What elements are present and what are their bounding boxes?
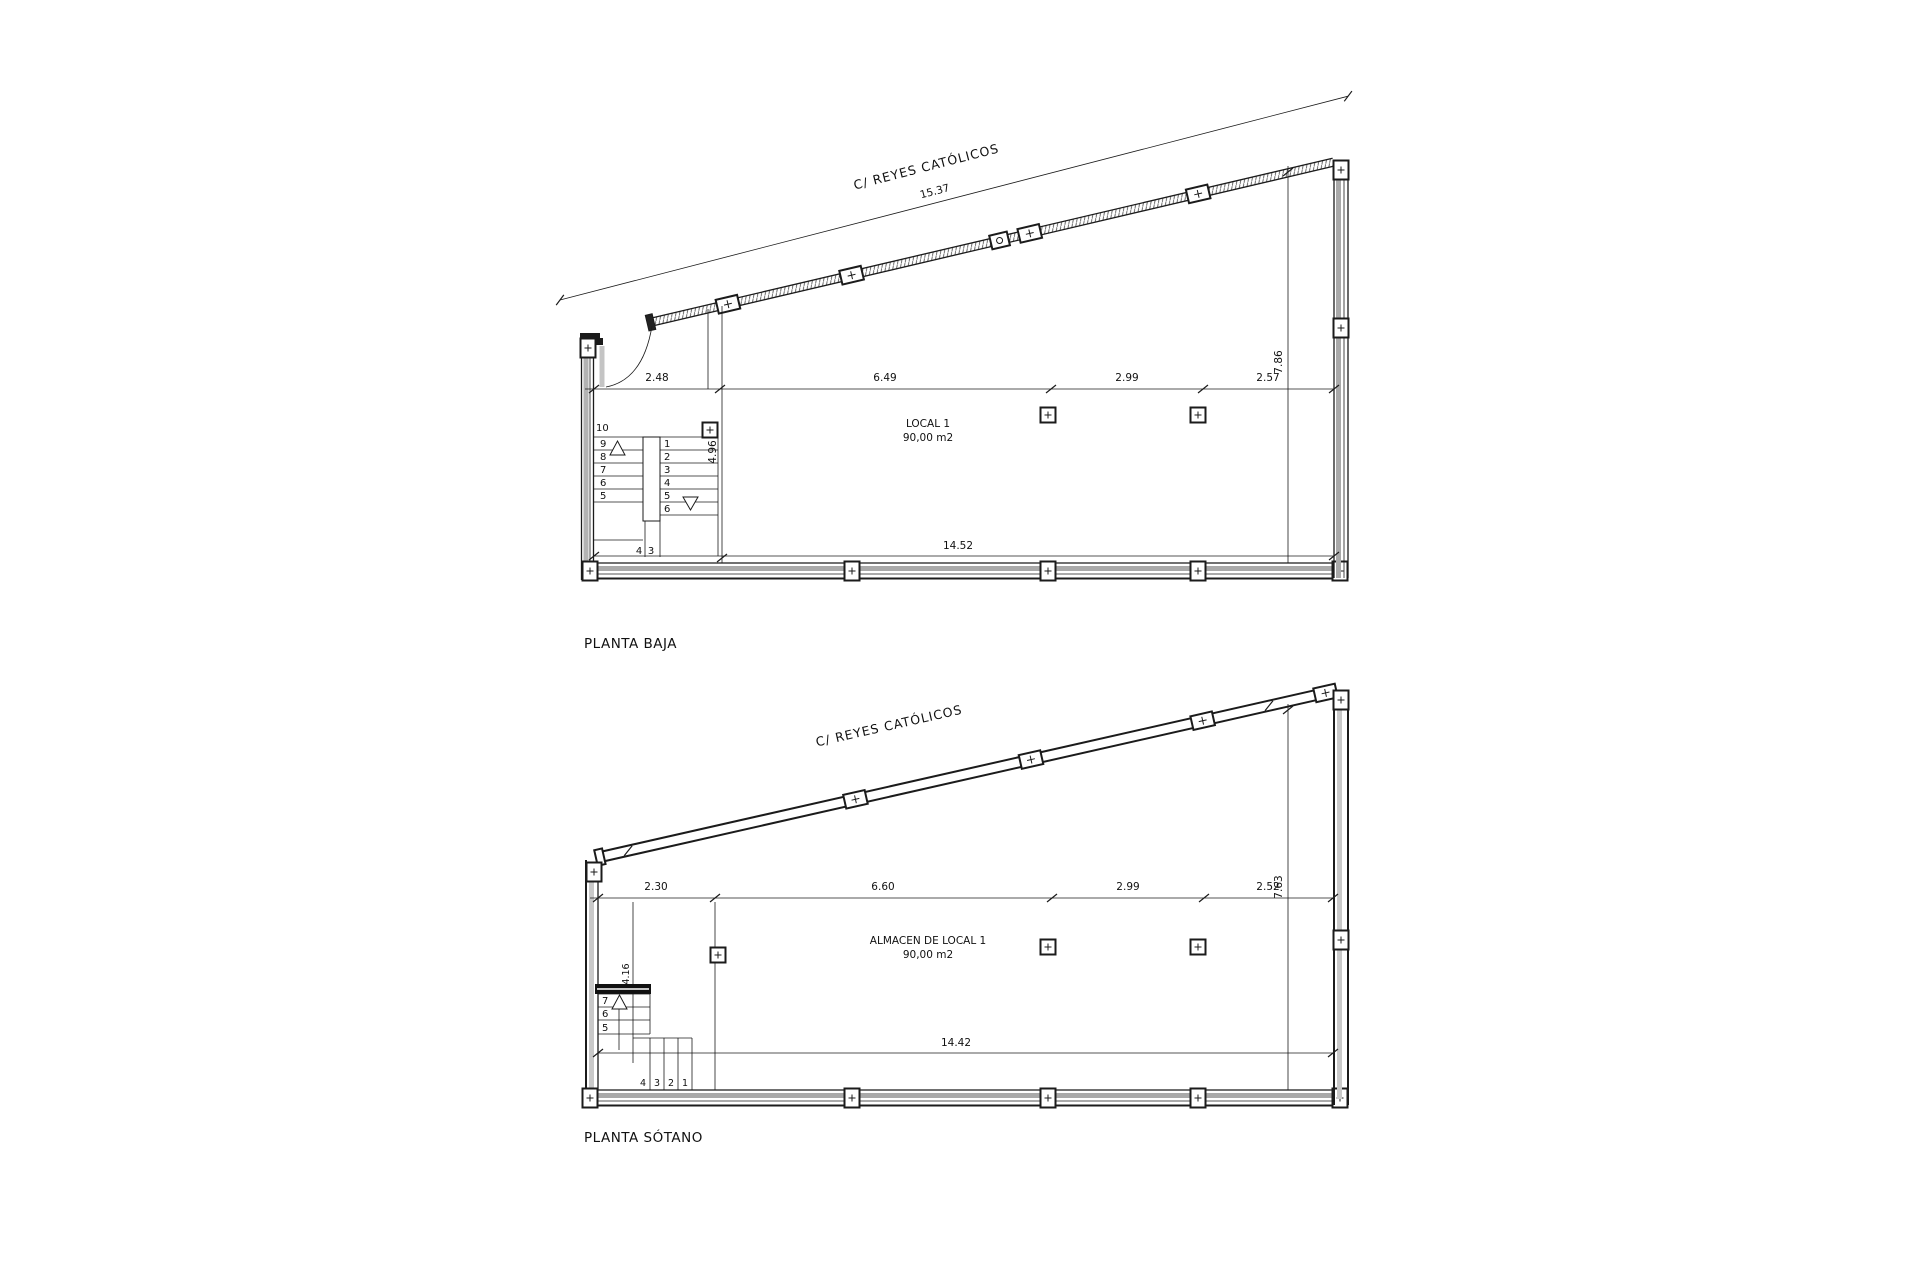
wall-pillar xyxy=(1334,319,1349,338)
architectural-sheet: C/ REYES CATÓLICOS 15.37 xyxy=(0,0,1920,1280)
staircase: 10 9 8 7 6 5 1 2 3 4 5 6 4 3 xyxy=(594,423,718,557)
facade-pillar xyxy=(1186,185,1211,204)
stair-rail xyxy=(643,437,660,521)
facade-pillar xyxy=(843,790,868,809)
room-area: 90,00 m2 xyxy=(903,432,953,444)
stair-step-number: 4 xyxy=(636,546,642,557)
facade-pillar xyxy=(1190,711,1215,730)
bottom-dimension-line: 14.42 xyxy=(593,1037,1338,1057)
bottom-wall xyxy=(582,1089,1348,1108)
stair-step-number: 3 xyxy=(654,1078,660,1089)
column-pillar xyxy=(711,948,726,963)
wall-pillar xyxy=(1334,931,1349,950)
stair-step-number: 5 xyxy=(602,1023,608,1034)
column-pillar xyxy=(1041,940,1056,955)
stair-step-number: 1 xyxy=(682,1078,688,1089)
stair-up-arrow xyxy=(612,995,627,1009)
dim-stair-length: 4.16 xyxy=(621,963,632,984)
column-pillar xyxy=(703,423,718,438)
stair-step-number: 7 xyxy=(600,465,606,476)
dimension-tick xyxy=(554,295,566,305)
depth-dimension-right: 7.86 xyxy=(1273,166,1293,563)
corner-pillar xyxy=(1334,691,1349,710)
dimension-tick xyxy=(1342,91,1354,101)
facade-wall xyxy=(645,154,1335,331)
dim-interior-depth: 4.96 xyxy=(707,440,719,464)
column-pillar xyxy=(1041,408,1056,423)
dim-segment-1: 2.30 xyxy=(644,881,667,893)
dim-bottom-total: 14.42 xyxy=(941,1037,971,1049)
stair-step-number: 5 xyxy=(664,491,670,502)
street-name-label: C/ REYES CATÓLICOS xyxy=(852,141,1001,193)
facade-pillar xyxy=(989,232,1010,250)
dim-segment-2: 6.60 xyxy=(871,881,894,893)
right-wall xyxy=(1334,161,1349,579)
bottom-dimension-line: 14.52 xyxy=(589,540,1339,560)
dim-segment-1: 2.48 xyxy=(645,372,668,384)
facade-pillar xyxy=(1017,224,1042,243)
room-label: ALMACEN DE LOCAL 1 90,00 m2 xyxy=(870,935,986,961)
corner-pillar xyxy=(1334,161,1349,180)
facade-end-cap xyxy=(645,314,655,331)
bottom-wall xyxy=(582,562,1348,581)
room-area: 90,00 m2 xyxy=(903,949,953,961)
stair-step-number: 2 xyxy=(668,1078,674,1089)
depth-dimension-right: 7.63 xyxy=(1273,704,1293,1090)
dim-segment-3: 2.99 xyxy=(1115,372,1138,384)
stair-step-number: 1 xyxy=(664,439,670,450)
corner-pillar xyxy=(581,339,596,358)
stair-step-number: 4 xyxy=(664,478,670,489)
column-pillar xyxy=(1191,940,1206,955)
stair-step-number: 6 xyxy=(664,504,670,515)
stair-step-number: 6 xyxy=(602,1009,608,1020)
staircase: 4.16 7 6 5 4 3 2 1 xyxy=(595,902,715,1090)
stair-step-number: 2 xyxy=(664,452,670,463)
facade-pillar xyxy=(1019,750,1044,769)
stair-step-number: 7 xyxy=(602,996,608,1007)
room-name: LOCAL 1 xyxy=(906,418,950,430)
dim-segment-2: 6.49 xyxy=(873,372,896,384)
stair-step-number: 3 xyxy=(648,546,654,557)
facade-wall xyxy=(594,683,1338,866)
street-total-dimension: 15.37 xyxy=(919,182,951,201)
stair-step-number: 6 xyxy=(600,478,606,489)
stair-step-number: 4 xyxy=(640,1078,646,1089)
dim-right-depth: 7.63 xyxy=(1273,875,1285,898)
stair-step-number: 8 xyxy=(600,452,606,463)
right-wall xyxy=(1334,690,1349,1105)
stair-down-arrow xyxy=(683,497,698,510)
plan-title: PLANTA BAJA xyxy=(584,636,677,652)
wall-nub xyxy=(596,338,603,345)
wall-pillar xyxy=(583,562,598,581)
wall-pillar xyxy=(583,1089,598,1108)
dim-right-depth: 7.86 xyxy=(1273,350,1285,374)
facade-pillar xyxy=(716,295,741,314)
wall-pillar xyxy=(1191,1089,1206,1108)
room-name: ALMACEN DE LOCAL 1 xyxy=(870,935,986,947)
plan-planta-sotano: C/ REYES CATÓLICOS xyxy=(582,683,1349,1146)
street-dimension-line: C/ REYES CATÓLICOS 15.37 xyxy=(544,51,1354,305)
interior-dimension-line: 2.30 6.60 2.99 2.52 xyxy=(590,881,1338,902)
wall-pillar xyxy=(1041,1089,1056,1108)
room-label: LOCAL 1 90,00 m2 xyxy=(903,418,953,444)
wall-pillar xyxy=(845,562,860,581)
floor-plan-drawing: C/ REYES CATÓLICOS 15.37 xyxy=(0,0,1920,1280)
wall-pillar xyxy=(1191,562,1206,581)
stair-up-arrow xyxy=(610,441,625,455)
stair-step-number: 3 xyxy=(664,465,670,476)
corner-pillar xyxy=(587,863,602,882)
dim-segment-3: 2.99 xyxy=(1116,881,1139,893)
column-pillar xyxy=(1191,408,1206,423)
wall-pillar xyxy=(1041,562,1056,581)
dim-bottom-total: 14.52 xyxy=(943,540,973,552)
stair-step-number: 9 xyxy=(600,439,606,450)
stair-step-number: 5 xyxy=(600,491,606,502)
plan-title: PLANTA SÓTANO xyxy=(584,1128,703,1146)
stair-step-number: 10 xyxy=(596,423,609,434)
plan-planta-baja: C/ REYES CATÓLICOS 15.37 xyxy=(544,51,1354,652)
street-name-label: C/ REYES CATÓLICOS xyxy=(814,702,963,750)
wall-pillar xyxy=(845,1089,860,1108)
interior-dimension-line: 2.48 6.49 2.99 2.57 xyxy=(585,372,1339,393)
facade-pillar xyxy=(839,266,864,285)
